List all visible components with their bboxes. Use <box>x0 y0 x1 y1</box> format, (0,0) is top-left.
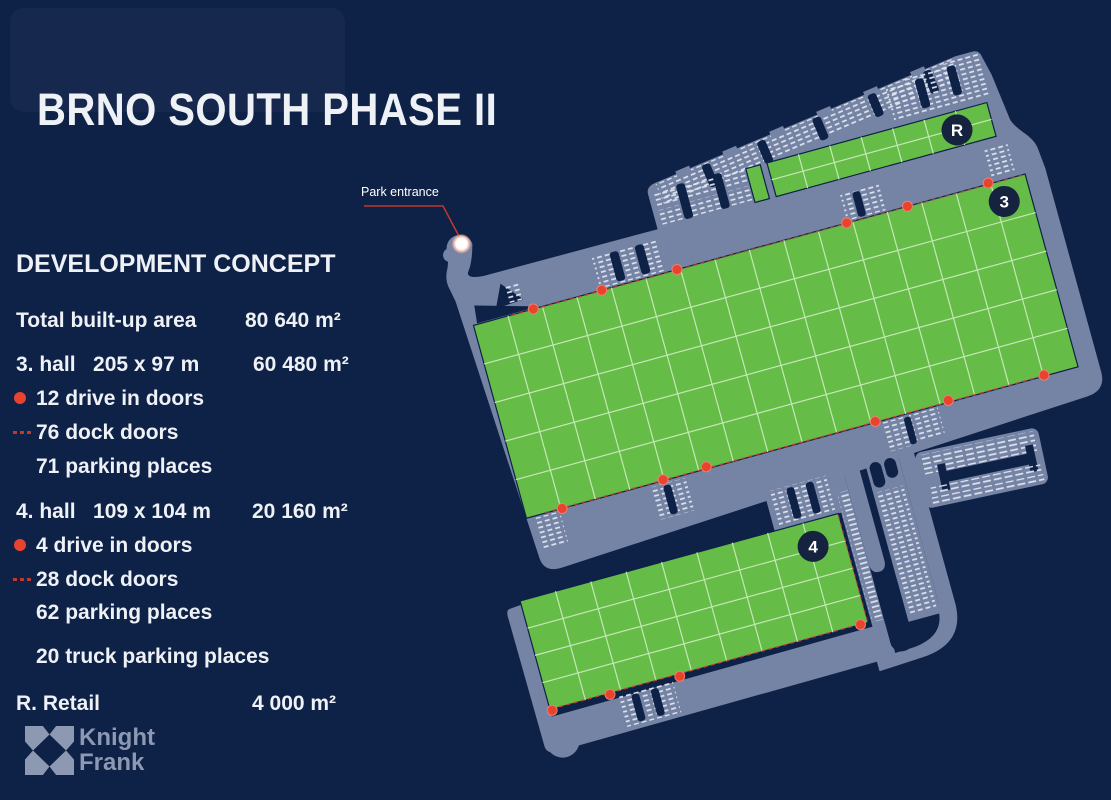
svg-text:R: R <box>951 121 963 140</box>
svg-text:4: 4 <box>808 537 818 556</box>
svg-text:3: 3 <box>999 192 1008 211</box>
